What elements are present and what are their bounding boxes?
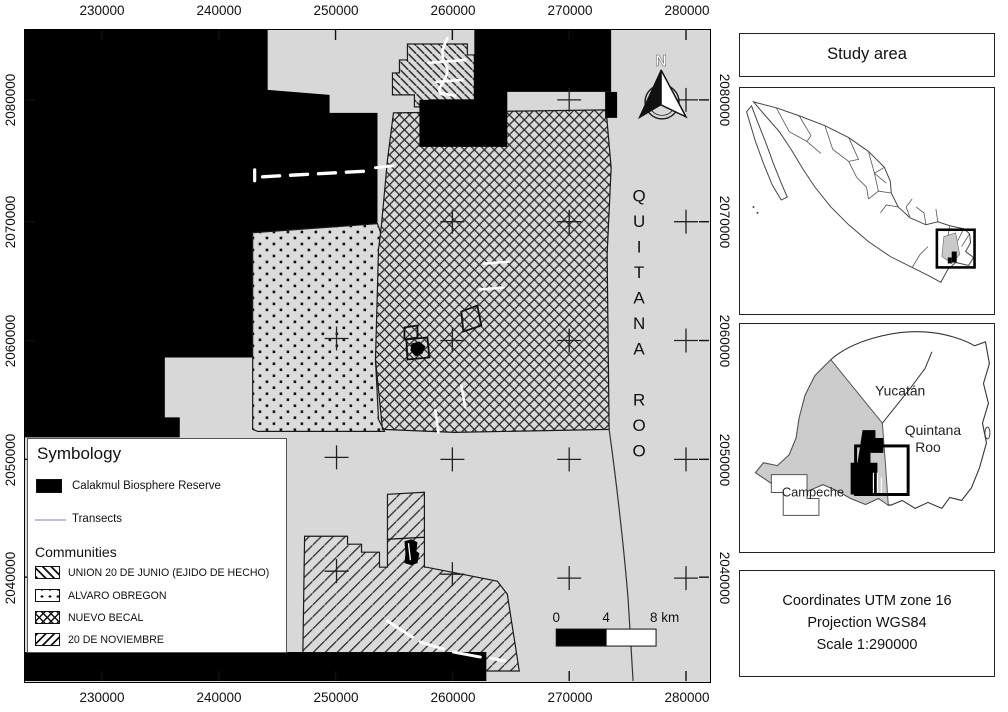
y-axis-label-left: 2050000 bbox=[3, 420, 19, 500]
community-label-alvaro: ALVARO OBREGON bbox=[68, 590, 167, 602]
region-name-letter: N bbox=[633, 314, 645, 333]
x-axis-label-bottom: 240000 bbox=[179, 690, 259, 705]
y-axis-label-right: 2070000 bbox=[716, 182, 732, 262]
x-axis-label-top: 280000 bbox=[647, 3, 727, 18]
reserve-south-strip bbox=[25, 652, 486, 681]
x-axis-label-bottom: 230000 bbox=[62, 690, 142, 705]
transect-swatch bbox=[35, 519, 66, 521]
community-label-union: UNION 20 DE JUNIO (EJIDO DE HECHO) bbox=[68, 567, 269, 579]
study-area-title: Study area bbox=[827, 45, 907, 63]
reserve-label: Calakmul Biosphere Reserve bbox=[72, 480, 221, 492]
communities-title: Communities bbox=[35, 544, 117, 560]
yucatan-inset: Yucatán Quintana Roo Campeche bbox=[739, 323, 995, 553]
x-axis-label-bottom: 270000 bbox=[530, 690, 610, 705]
scale-end: 8 km bbox=[650, 610, 679, 625]
y-axis-label-left: 2080000 bbox=[3, 60, 19, 140]
region-name-letter: A bbox=[633, 289, 645, 308]
x-axis-label-top: 240000 bbox=[179, 3, 259, 18]
legend-title: Symbology bbox=[37, 444, 121, 464]
x-axis-label-bottom: 260000 bbox=[413, 690, 493, 705]
label-campeche: Campeche bbox=[782, 484, 844, 499]
y-axis-label-left: 2060000 bbox=[3, 301, 19, 381]
label-yucatan: Yucatán bbox=[875, 382, 925, 398]
nuevo-becal-swatch-icon bbox=[35, 611, 60, 624]
x-axis-label-top: 260000 bbox=[413, 3, 493, 18]
community-label-nuevo-becal: NUEVO BECAL bbox=[68, 612, 143, 624]
community-label-20-noviembre: 20 DE NOVIEMBRE bbox=[68, 634, 164, 646]
yucatan-inset-map: Yucatán Quintana Roo Campeche bbox=[740, 324, 994, 552]
y-axis-label-right: 2040000 bbox=[716, 538, 732, 618]
label-roo: Roo bbox=[915, 439, 941, 455]
community-alvaro-obregon bbox=[253, 224, 387, 432]
legend: Symbology Calakmul Biosphere Reserve Tra… bbox=[27, 438, 287, 653]
region-name-letter: Q bbox=[632, 187, 645, 206]
community-nuevo-becal bbox=[375, 110, 611, 433]
study-area-title-box: Study area bbox=[739, 33, 995, 77]
y-axis-label-right: 2060000 bbox=[716, 301, 732, 381]
settlement-blob-south bbox=[404, 539, 419, 565]
info-line-projection: Projection WGS84 bbox=[740, 612, 994, 634]
projection-info-box: Coordinates UTM zone 16 Projection WGS84… bbox=[739, 570, 995, 677]
y-axis-label-left: 2070000 bbox=[3, 182, 19, 262]
x-axis-label-bottom: 250000 bbox=[296, 690, 376, 705]
region-name-letter: O bbox=[632, 416, 645, 435]
transects-label: Transects bbox=[72, 513, 122, 525]
info-line-coordinates: Coordinates UTM zone 16 bbox=[740, 590, 994, 612]
north-label: N bbox=[655, 53, 667, 70]
alvaro-swatch-icon bbox=[35, 589, 60, 602]
x-axis-label-top: 270000 bbox=[530, 3, 610, 18]
region-name-letter: R bbox=[633, 390, 645, 409]
mexico-inset bbox=[739, 87, 995, 315]
veinte-noviembre-swatch-icon bbox=[35, 633, 60, 646]
region-name-letter: A bbox=[633, 340, 645, 359]
scale-zero: 0 bbox=[552, 610, 560, 625]
region-name-vertical: QUITANAROO bbox=[632, 187, 645, 461]
mexico-inset-map bbox=[740, 88, 994, 314]
scale-mid: 4 bbox=[602, 610, 610, 625]
region-name-letter: U bbox=[633, 212, 645, 231]
x-axis-label-top: 250000 bbox=[296, 3, 376, 18]
map-figure: N 0 4 8 km QUITANAROO 230000230000240000… bbox=[0, 0, 1008, 712]
x-axis-label-top: 230000 bbox=[62, 3, 142, 18]
y-axis-label-right: 2080000 bbox=[716, 60, 732, 140]
region-name-letter: O bbox=[632, 441, 645, 460]
region-name-letter: T bbox=[634, 263, 644, 282]
x-axis-label-bottom: 280000 bbox=[647, 690, 727, 705]
info-line-scale: Scale 1:290000 bbox=[740, 634, 994, 656]
label-quintana: Quintana bbox=[905, 422, 962, 438]
y-axis-label-right: 2050000 bbox=[716, 420, 732, 500]
reserve-north-tab bbox=[605, 92, 617, 118]
union-swatch-icon bbox=[35, 566, 60, 579]
region-name-letter: I bbox=[637, 238, 642, 257]
y-axis-label-left: 2040000 bbox=[3, 538, 19, 618]
reserve-swatch bbox=[36, 479, 62, 493]
